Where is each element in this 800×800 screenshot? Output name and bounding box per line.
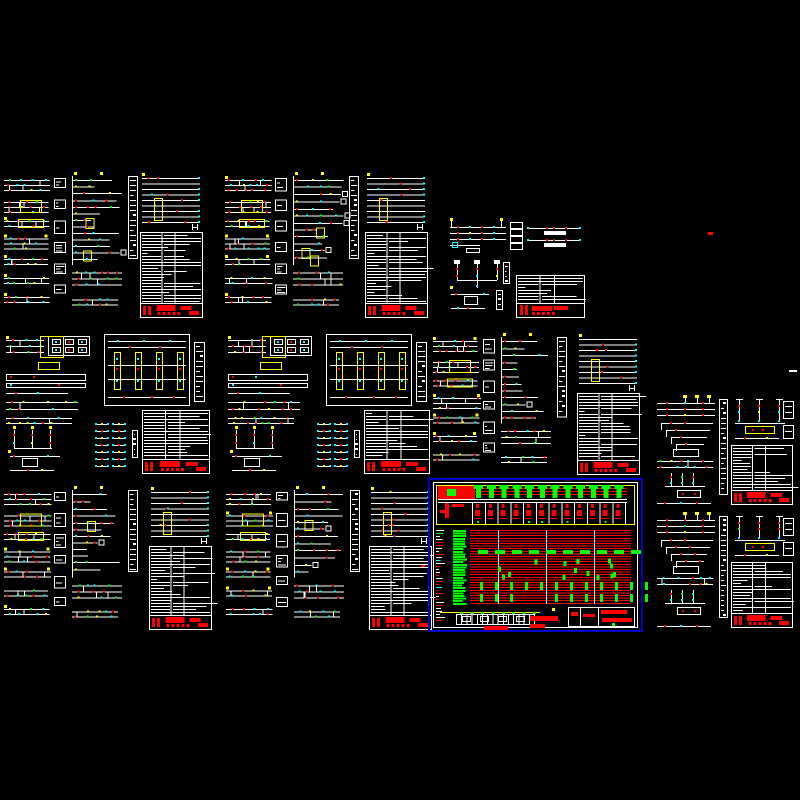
sheet-r3c3-highlighted-distribution-table[interactable] [429, 479, 649, 632]
sheet-r3c2-schematic[interactable] [226, 486, 436, 630]
sheet-r1c1-schematic[interactable] [4, 172, 203, 318]
drawing-canvas[interactable] [0, 0, 800, 800]
stray-red-dash [708, 232, 713, 235]
stray-red-dot [421, 565, 425, 567]
sheet-r3c1-schematic[interactable] [4, 486, 218, 630]
sheet-r3c4-schematic-right[interactable] [657, 512, 794, 628]
sheet-r2c2-schematic[interactable] [228, 335, 434, 474]
sheet-r2c4-schematic-right[interactable] [657, 395, 799, 505]
stray-white-dash [789, 370, 797, 372]
cad-viewport [0, 0, 800, 800]
sheet-r1c2-schematic[interactable] [225, 172, 434, 318]
sheet-r2c3-schematic[interactable] [433, 333, 646, 475]
sheet-r1c3-schematic-small[interactable] [450, 218, 586, 318]
sheet-r2c1-schematic[interactable] [6, 335, 211, 474]
